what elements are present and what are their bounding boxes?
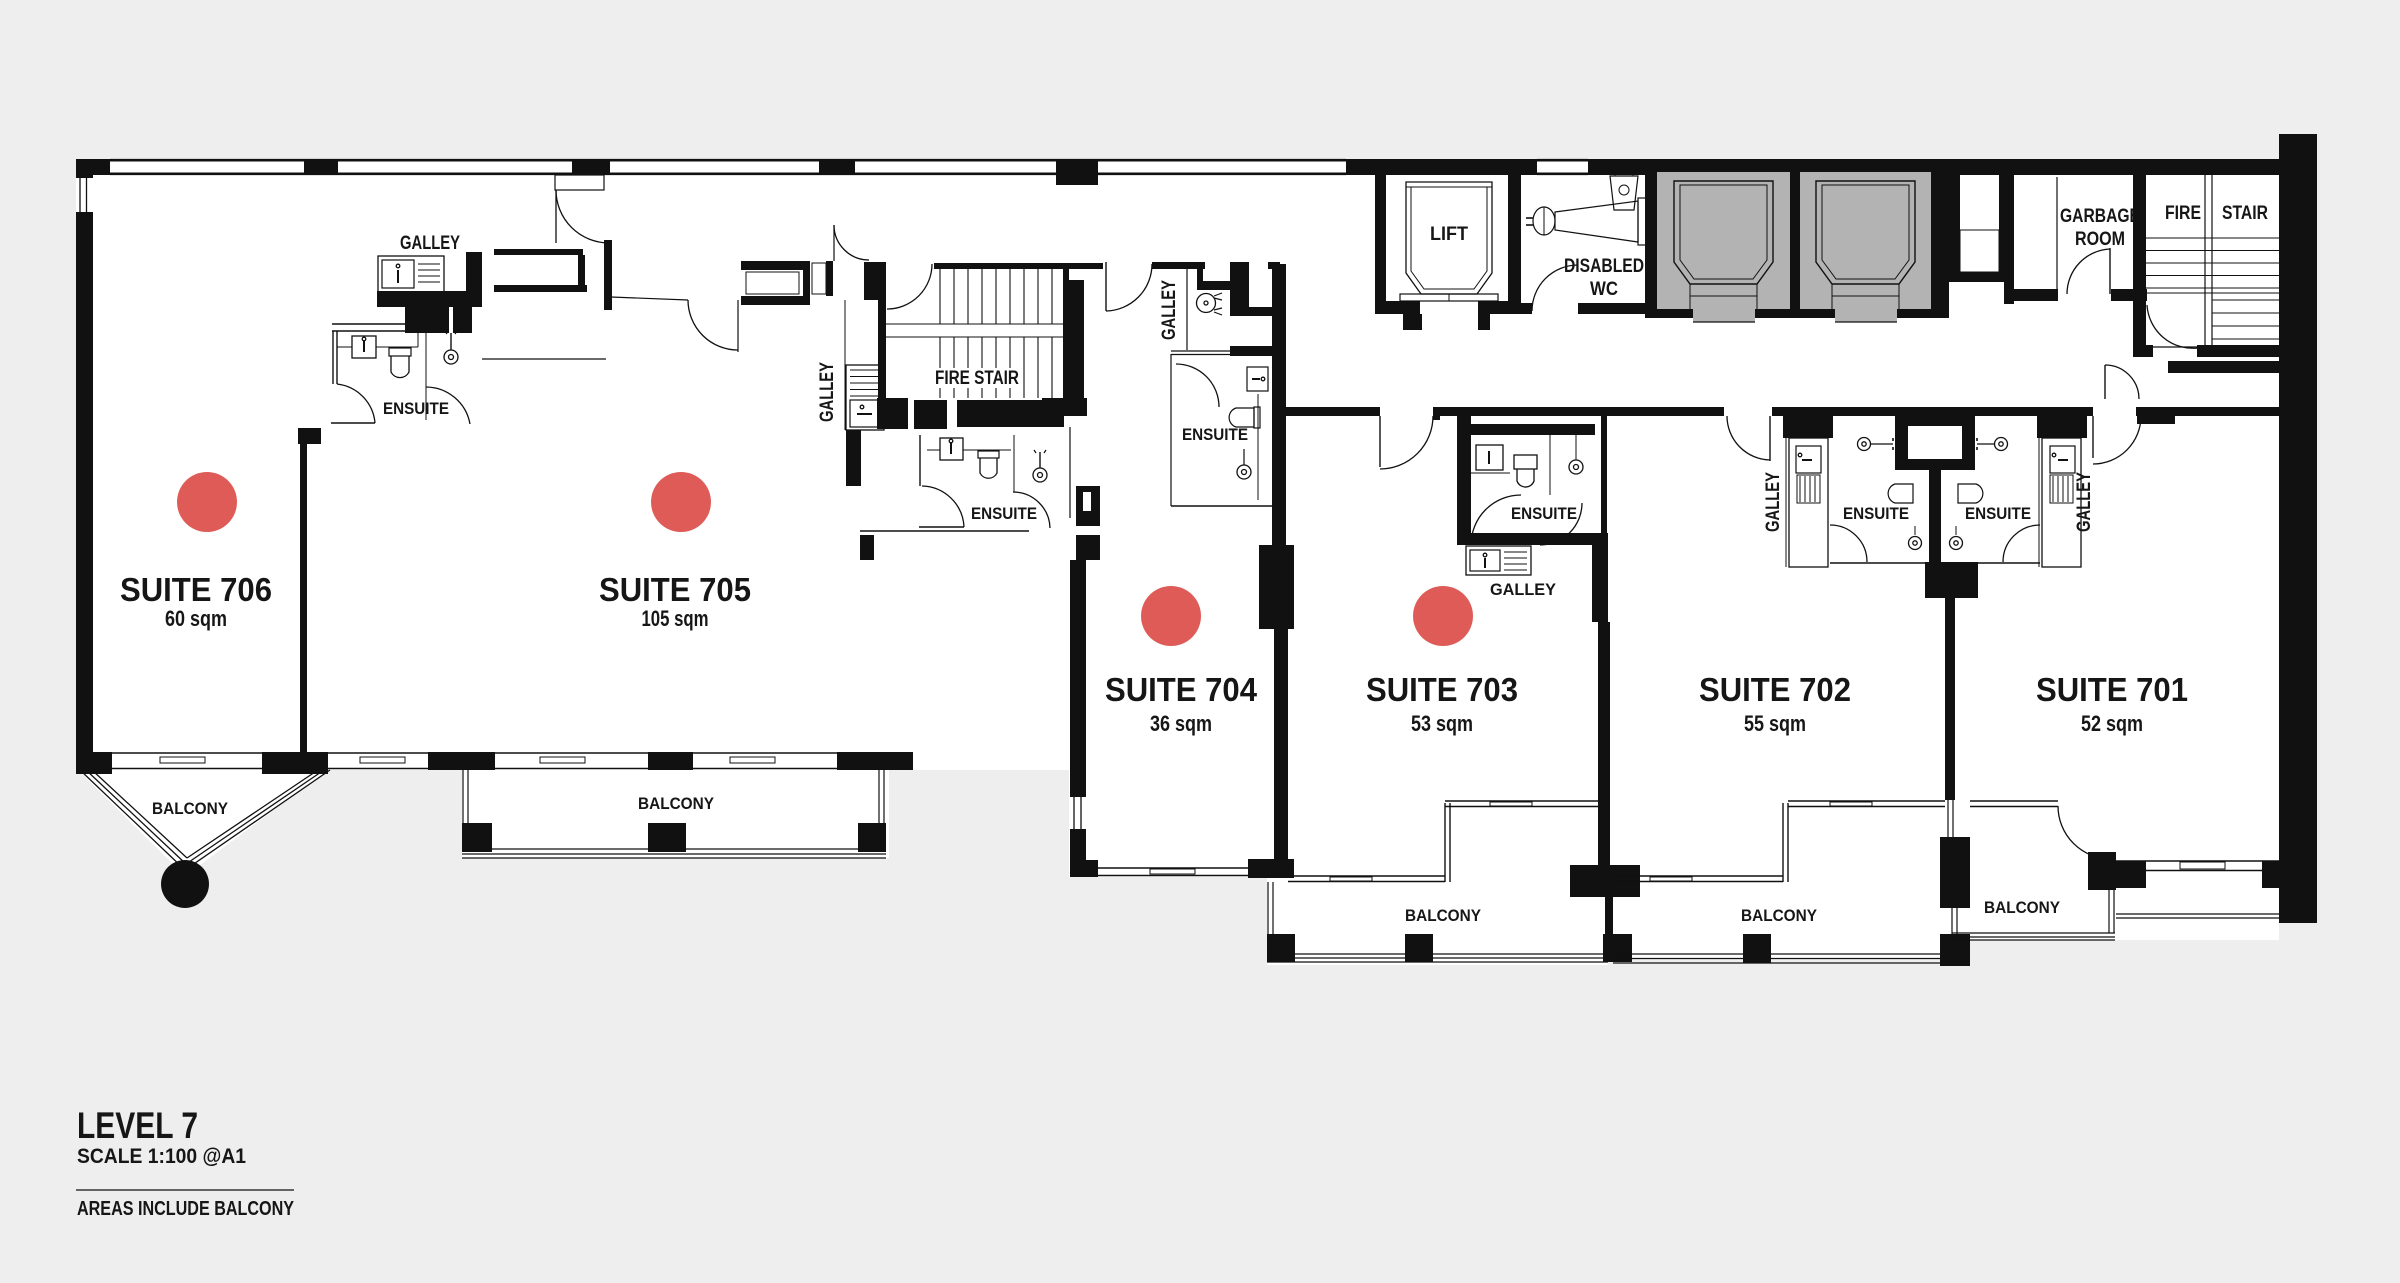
svg-text:ENSUITE: ENSUITE <box>1182 425 1248 444</box>
svg-text:BALCONY: BALCONY <box>1405 906 1482 925</box>
svg-text:ENSUITE: ENSUITE <box>1843 504 1909 523</box>
svg-text:GALLEY: GALLEY <box>1763 472 1784 532</box>
svg-text:GALLEY: GALLEY <box>400 233 460 254</box>
svg-text:ENSUITE: ENSUITE <box>1511 504 1577 523</box>
svg-text:GARBAGE: GARBAGE <box>2060 206 2140 227</box>
svg-text:LIFT: LIFT <box>1430 224 1468 245</box>
svg-text:ENSUITE: ENSUITE <box>383 399 449 418</box>
svg-text:GALLEY: GALLEY <box>817 362 838 422</box>
svg-text:SUITE 704: SUITE 704 <box>1105 671 1258 708</box>
svg-text:AREAS INCLUDE BALCONY: AREAS INCLUDE BALCONY <box>77 1198 295 1220</box>
svg-text:SUITE 702: SUITE 702 <box>1699 671 1851 708</box>
svg-text:WC: WC <box>1590 279 1618 300</box>
svg-text:SUITE 701: SUITE 701 <box>2036 671 2188 708</box>
svg-text:36 sqm: 36 sqm <box>1150 711 1212 736</box>
svg-text:FIRE STAIR: FIRE STAIR <box>935 368 1019 389</box>
svg-text:BALCONY: BALCONY <box>1984 898 2061 917</box>
svg-text:52 sqm: 52 sqm <box>2081 711 2143 736</box>
svg-text:BALCONY: BALCONY <box>1741 906 1818 925</box>
svg-text:SCALE 1:100 @A1: SCALE 1:100 @A1 <box>77 1145 246 1168</box>
svg-text:60 sqm: 60 sqm <box>165 606 227 631</box>
svg-text:SUITE 703: SUITE 703 <box>1366 671 1518 708</box>
svg-text:SUITE 705: SUITE 705 <box>599 571 751 608</box>
svg-text:GALLEY: GALLEY <box>2074 472 2095 532</box>
svg-text:GALLEY: GALLEY <box>1490 580 1557 599</box>
svg-text:BALCONY: BALCONY <box>638 794 715 813</box>
svg-text:GALLEY: GALLEY <box>1159 280 1180 340</box>
svg-text:FIRE: FIRE <box>2165 203 2201 224</box>
svg-text:BALCONY: BALCONY <box>152 799 229 818</box>
svg-text:ENSUITE: ENSUITE <box>1965 504 2031 523</box>
svg-text:ROOM: ROOM <box>2075 229 2125 250</box>
svg-text:53 sqm: 53 sqm <box>1411 711 1473 736</box>
svg-text:55 sqm: 55 sqm <box>1744 711 1806 736</box>
svg-text:STAIR: STAIR <box>2222 203 2268 224</box>
svg-text:SUITE 706: SUITE 706 <box>120 571 272 608</box>
svg-text:LEVEL 7: LEVEL 7 <box>77 1105 198 1146</box>
svg-text:ENSUITE: ENSUITE <box>971 504 1037 523</box>
svg-text:DISABLED: DISABLED <box>1564 256 1644 277</box>
svg-text:105 sqm: 105 sqm <box>642 606 709 631</box>
